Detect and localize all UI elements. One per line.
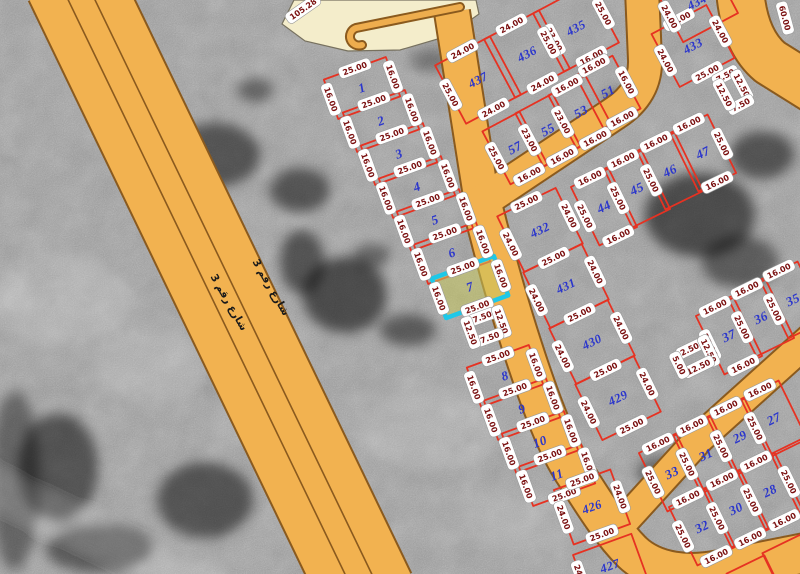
- cadastral-map-svg: 25.0016.0016.0025.0016.0016.0025.0016.00…: [0, 0, 800, 574]
- map-viewport[interactable]: 25.0016.0016.0025.0016.0016.0025.0016.00…: [0, 0, 800, 574]
